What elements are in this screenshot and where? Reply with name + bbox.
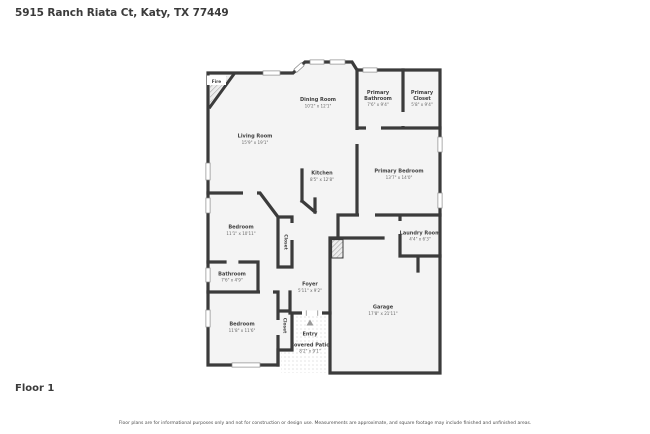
room-label-closet-1: Closet: [283, 234, 289, 249]
room-dims-bedroom-2: 11'8" x 11'6": [229, 328, 256, 333]
room-dims-laundry-room: 4'4" x 6'3": [409, 237, 431, 242]
room-dims-covered-patio: 8'2" x 9'1": [299, 349, 321, 354]
room-dims-primary-bedroom: 13'7" x 14'0": [386, 175, 413, 180]
room-label-primary-bedroom: Primary Bedroom: [374, 169, 423, 175]
room-dims-bedroom-1: 11'1" x 10'11": [226, 231, 255, 236]
room-dims-dining-room: 10'2" x 12'1": [305, 104, 332, 109]
room-dims-garage: 17'8" x 21'11": [368, 311, 397, 316]
room-dims-bathroom: 7'6" x 4'9": [221, 278, 243, 283]
floor-plan: Fire Dining Room 10'2" x 12'1" Primary B…: [0, 0, 650, 434]
room-label-bedroom-1: Bedroom: [228, 225, 253, 231]
room-label-closet-2: Closet: [282, 318, 288, 333]
room-dims-primary-closet: 5'8" x 9'4": [411, 102, 433, 107]
room-label-dining-room: Dining Room: [300, 97, 336, 103]
room-dims-foyer: 5'11" x 9'2": [298, 288, 322, 293]
fireplace-label: Fire: [212, 79, 222, 85]
room-label-garage: Garage: [373, 305, 394, 311]
room-label-foyer: Foyer: [302, 282, 318, 288]
room-dims-living-room: 15'9" x 19'1": [242, 140, 269, 145]
room-dims-primary-bathroom: 7'6" x 9'4": [367, 102, 389, 107]
room-label-bedroom-2: Bedroom: [229, 322, 254, 328]
water-heater-pad: [332, 240, 343, 258]
room-dims-kitchen: 8'5" x 12'8": [310, 177, 334, 182]
room-label-kitchen: Kitchen: [311, 171, 333, 177]
room-label-entry: Entry: [302, 332, 318, 338]
disclaimer-text: Floor plans are for informational purpos…: [119, 420, 532, 426]
room-label-living-room: Living Room: [238, 134, 273, 140]
